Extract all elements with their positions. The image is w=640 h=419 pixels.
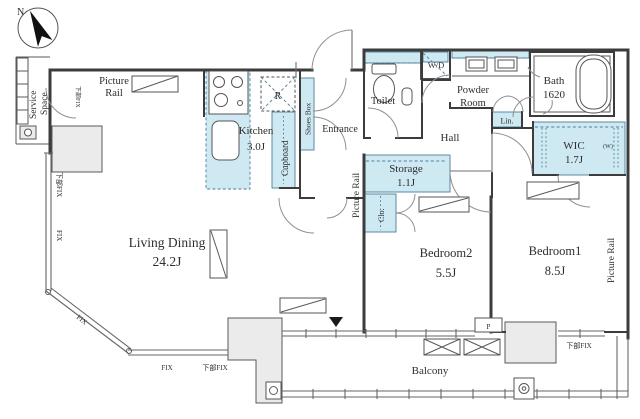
refrigerator-label: R [275, 91, 282, 102]
bedroom2-label: Bedroom2 [420, 246, 473, 260]
washer-dryer-label: W/D [428, 60, 445, 70]
toilet-door-arc [368, 108, 398, 138]
bathtub-icon [576, 55, 611, 113]
picture-rail-center-label: Picture Rail [352, 173, 362, 218]
left-fix-label: FIX [55, 230, 63, 241]
bedroom1-door-arc [492, 133, 532, 173]
bedroom1-lower-fix-label: 下部FIX [566, 341, 591, 350]
living-dining-label: Living Dining [129, 235, 206, 250]
powder-sink-icons [452, 57, 529, 76]
entry-marker-triangle [329, 317, 343, 327]
picture-rail-top-label-1: Picture [99, 76, 129, 87]
balcony-drain-left [266, 382, 281, 399]
entrance-label: Entrance [322, 124, 358, 135]
bedroom2-size: 5.5J [436, 266, 457, 280]
closet-doors [396, 194, 415, 232]
compass-north-label: N [17, 7, 24, 18]
ac-unit-1 [424, 339, 460, 355]
picture-rail-top-label-2: Rail [105, 88, 123, 99]
compass: N [17, 7, 58, 48]
linen-label: Lin. [500, 117, 513, 126]
kitchen-size: 3.0J [247, 141, 266, 153]
cupboard-label: Cupboard [280, 140, 290, 176]
bath-size: 1620 [543, 89, 566, 101]
shoes-box-label: Shoes Box [304, 102, 313, 135]
wic-hanger-note: (W) [603, 143, 613, 150]
storage-label: Storage [389, 163, 423, 175]
balcony-drain-right [514, 378, 534, 399]
stove-icon [209, 71, 248, 114]
wic-label: WIC [563, 140, 584, 152]
kitchen-sink-icon [212, 121, 239, 160]
picture-rail-right-label: Picture Rail [607, 238, 617, 283]
left-lower-fix-label: 下部FIX [55, 172, 64, 197]
wic-size: 1.7J [565, 154, 584, 166]
bottom-lower-fix-label: 下部FIX [202, 363, 227, 372]
bath-label: Bath [544, 75, 565, 87]
balcony-label: Balcony [412, 365, 449, 377]
storage-size: 1.1J [397, 177, 416, 189]
bedroom1-size: 8.5J [545, 264, 566, 278]
linen-doors [493, 96, 523, 112]
service-door-fix-label: 下部FIX [74, 86, 82, 108]
shoes-box-doors [313, 78, 346, 150]
toilet-shelf [365, 52, 421, 63]
floor-plan-svg: N Service Space Picture Rail Kitchen 3.0… [0, 0, 640, 419]
living-door-arc [279, 198, 314, 233]
structural-columns [52, 126, 556, 403]
entrance-door-arc [312, 30, 352, 70]
ac-unit-2 [464, 339, 500, 355]
service-space-label-1: Service [29, 91, 39, 120]
powder-room-label-2: Room [460, 98, 486, 109]
floor-plan-page: N Service Space Picture Rail Kitchen 3.0… [0, 0, 640, 419]
kitchen-label: Kitchen [239, 125, 274, 137]
powder-room-label-1: Powder [457, 85, 490, 96]
toilet-label: Toilet [371, 96, 395, 107]
service-space-label-2: Space [40, 92, 50, 115]
bedroom1-label: Bedroom1 [529, 244, 582, 258]
bottom-fix-label: FIX [161, 364, 172, 372]
living-dining-size: 24.2J [153, 254, 182, 269]
toilet-cabinet-icon [402, 88, 412, 105]
pipe-space-label: P [487, 323, 491, 331]
closet-label: Clo. [377, 208, 386, 222]
hall-label: Hall [441, 132, 460, 144]
